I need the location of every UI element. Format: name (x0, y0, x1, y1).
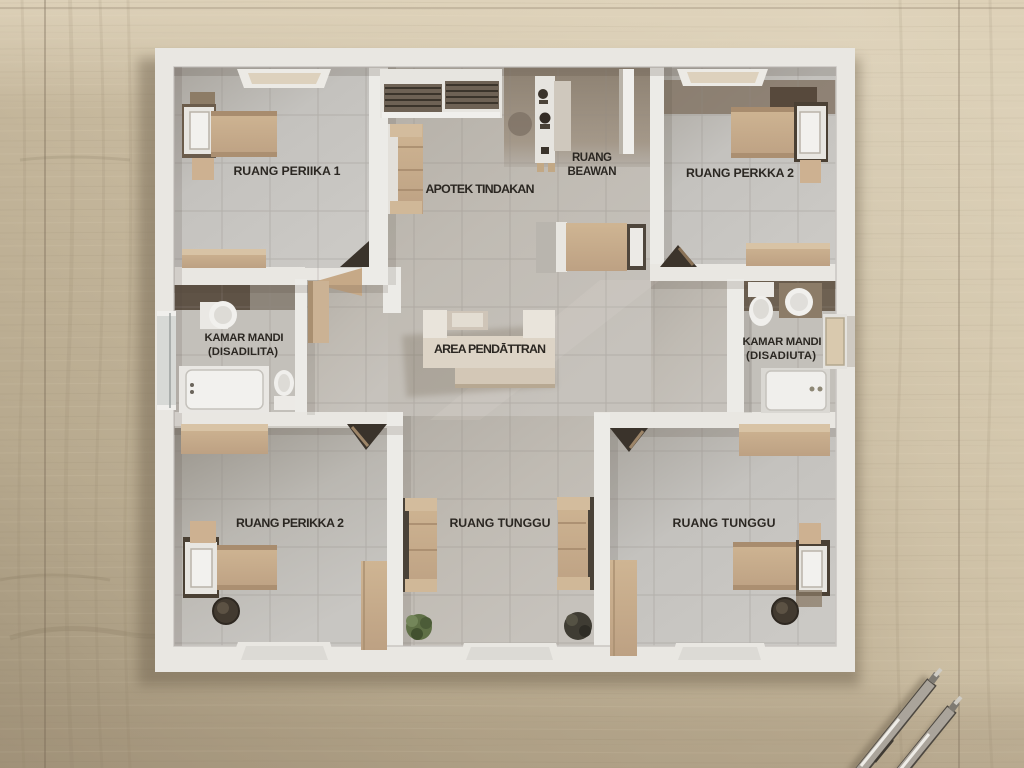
svg-text:(DISADILITA): (DISADILITA) (208, 346, 278, 358)
svg-text:(DISADIUTA): (DISADIUTA) (746, 350, 816, 362)
svg-text:BEAWAN: BEAWAN (568, 166, 617, 178)
svg-text:RUANG: RUANG (572, 152, 612, 164)
svg-text:RUANG TUNGGU: RUANG TUNGGU (673, 516, 776, 530)
svg-text:KAMAR MANDI: KAMAR MANDI (205, 332, 284, 344)
svg-text:KAMAR MANDI: KAMAR MANDI (743, 336, 822, 348)
svg-text:RUANG TUNGGU: RUANG TUNGGU (450, 516, 551, 530)
svg-text:RUANG PERIKKA 2: RUANG PERIKKA 2 (236, 516, 344, 530)
svg-text:APOTEK TINDAKAN: APOTEK TINDAKAN (426, 182, 535, 196)
svg-text:AREA PENDĀTTRAN: AREA PENDĀTTRAN (434, 342, 546, 356)
svg-text:RUANG PERKKA 2: RUANG PERKKA 2 (686, 166, 794, 180)
svg-text:RUANG PERIIKA 1: RUANG PERIIKA 1 (234, 164, 341, 178)
